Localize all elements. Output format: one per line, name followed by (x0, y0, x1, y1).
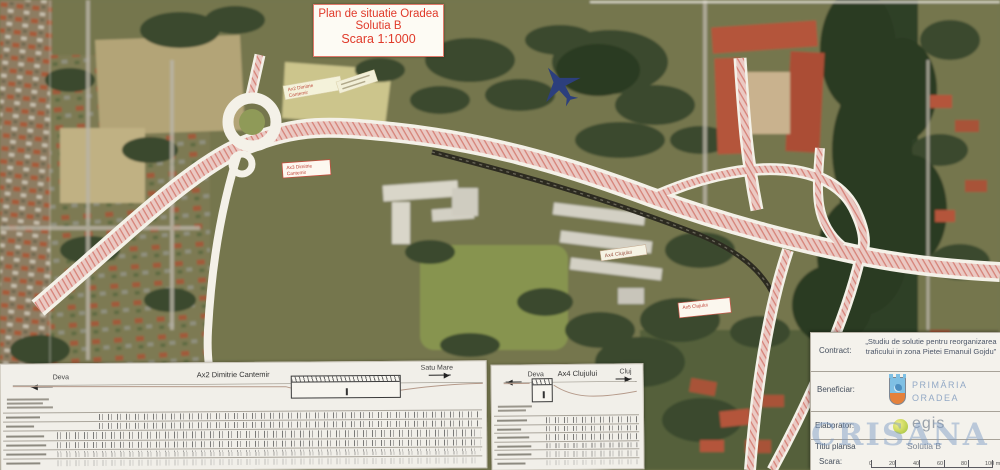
plan-scale: Scara 1:1000 (314, 32, 443, 46)
plan-solution: Solutia B (314, 20, 443, 32)
titlu-plansa-label: Titlu plansa (815, 442, 856, 451)
scara-label: Scara: (819, 457, 842, 466)
scale-tick: 40 (913, 461, 919, 467)
plan-sheet: Ax2 Dimitrie Cantemir Ax3 Dimitrie Cante… (0, 0, 1000, 470)
beneficiar-value: PRIMĂRIA ORADEA (912, 379, 968, 405)
profile-terrain-line (491, 364, 644, 410)
title-block: Contract: „Studiu de solutie pentru reor… (810, 332, 1000, 470)
primaria-oradea-logo (889, 377, 906, 405)
contract-label: Contract: (819, 346, 851, 355)
scale-tick: 80 (961, 461, 967, 467)
scale-tick: 0 (869, 461, 872, 467)
profile-terrain-line (1, 361, 488, 408)
beneficiar-line2: ORADEA (912, 392, 968, 405)
profile-panel-ax4: Deva Ax4 Clujului Cluj (490, 363, 644, 470)
elaborator-value: egis (912, 415, 945, 433)
plan-title: Plan de situatie Oradea (314, 8, 443, 20)
titlu-plansa-value: Solutia B (907, 441, 941, 451)
profile-data-table (494, 414, 640, 467)
scale-tick: 20 (889, 461, 895, 467)
beneficiar-label: Beneficiar: (817, 385, 855, 394)
elaborator-label: Elaborator: (815, 421, 854, 430)
underpass-symbol (532, 378, 553, 402)
profile-panel-ax2: Deva Ax2 Dimitrie Cantemir Satu Mare (0, 360, 487, 470)
profile-data-table (3, 409, 482, 467)
beneficiar-line1: PRIMĂRIA (912, 379, 968, 392)
underpass-symbol (291, 375, 401, 399)
scale-tick: 60 (937, 461, 943, 467)
map-axis-label-ax3: Ax3 Dimitrie Cantemir (282, 160, 331, 178)
contract-value: „Studiu de solutie pentru reorganizarea … (865, 337, 997, 356)
plan-title-box: Plan de situatie Oradea Solutia B Scara … (313, 4, 444, 57)
egis-logo-icon (893, 419, 908, 434)
scale-tick: 100 m (985, 461, 1000, 467)
